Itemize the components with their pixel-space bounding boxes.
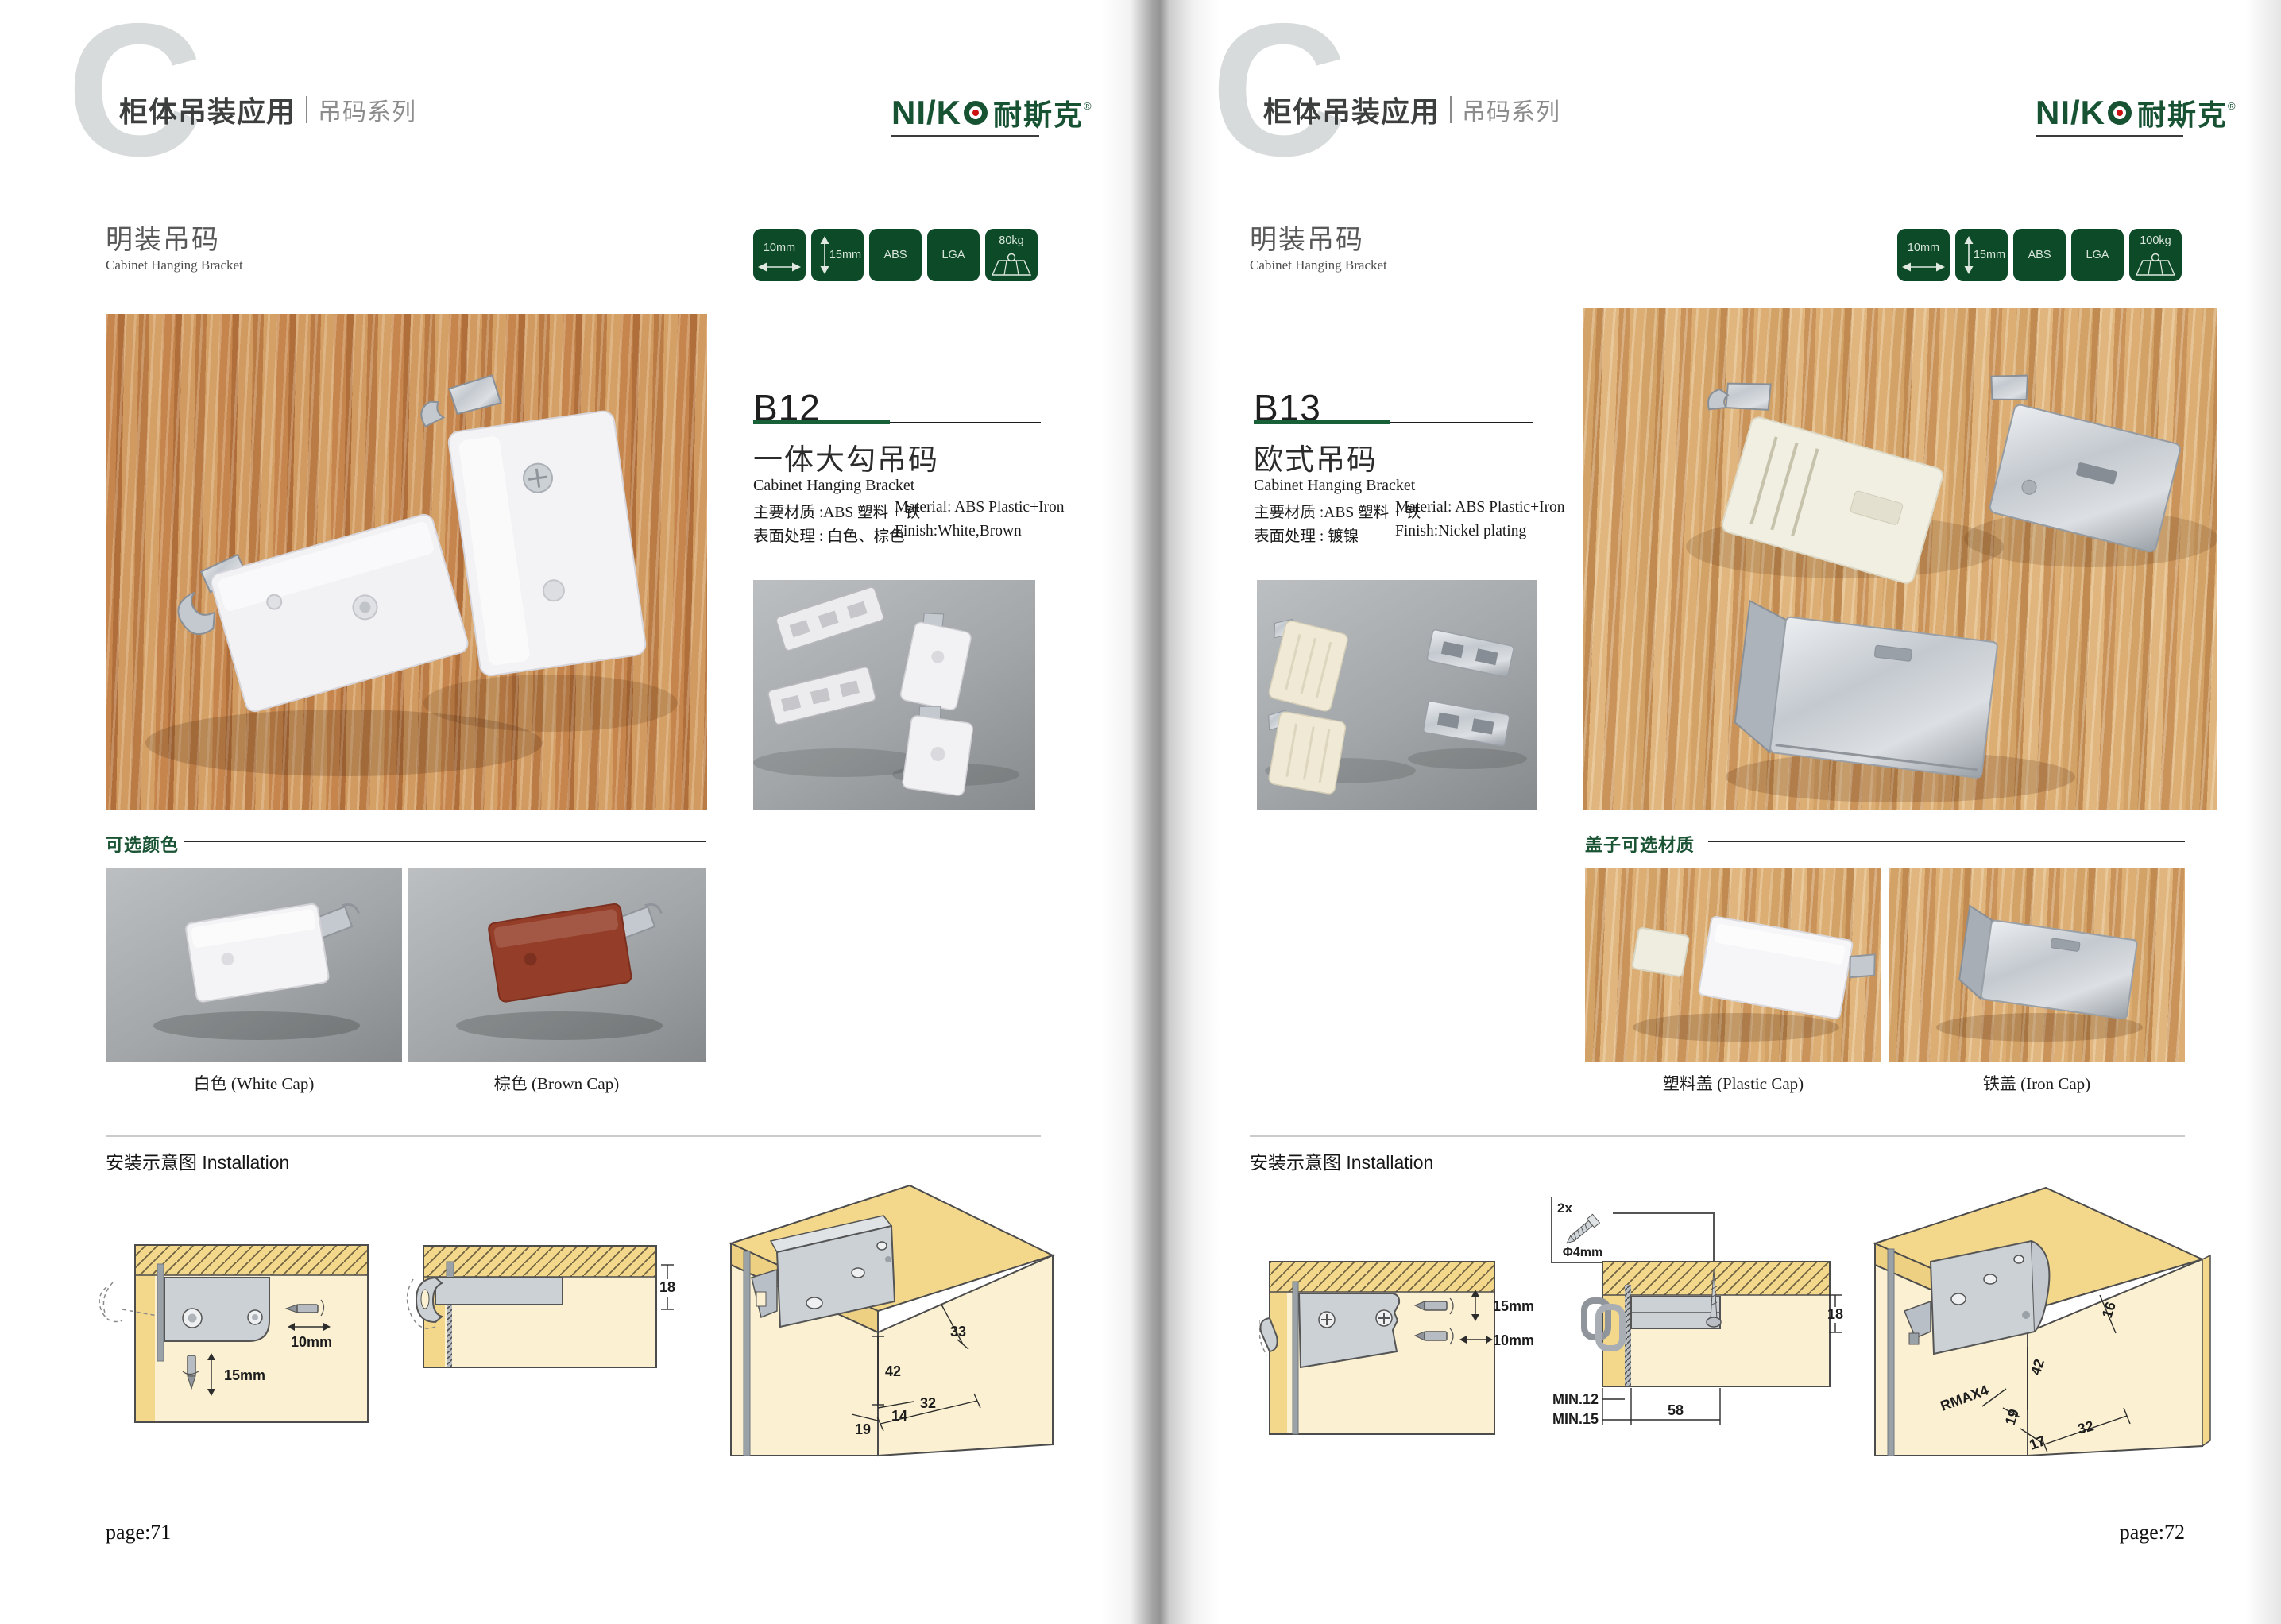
option-caption-plastic: 塑料盖 (Plastic Cap) [1585,1071,1881,1095]
dim-10mm: 10mm [291,1334,332,1350]
options-label: 可选颜色 [106,831,179,856]
product-name-zh: 一体大勾吊码 [753,435,939,478]
option-photo-iron [1889,868,2185,1062]
product-photo-inset [1257,580,1537,810]
width-arrow-icon [758,260,801,274]
logo-chinese-text: 耐斯克 [2137,92,2228,133]
option-photo-plastic [1585,868,1881,1062]
header-series: 吊码系列 [1462,92,1560,127]
iron-cap-illustration [1889,868,2185,1062]
installation-label: 安装示意图 Installation [1250,1147,1433,1174]
logo-latin-text: NI/K [891,94,961,132]
option-caption-brown: 棕色 (Brown Cap) [408,1071,705,1095]
product-photo-inset [753,580,1035,810]
page-header: 柜体吊装应用 吊码系列 [119,89,416,130]
section-title-zh: 明装吊码 [106,218,220,257]
badge-width: 10mm [1897,229,1950,281]
badge-load-label: 80kg [985,234,1038,247]
dim-15mm: 15mm [1493,1298,1534,1314]
logo-underline [2036,135,2183,137]
plastic-cap-illustration [1585,868,1881,1062]
options-rule [1708,841,2185,842]
dim-10mm: 10mm [1493,1332,1534,1348]
bracket-illustration [1583,308,2217,810]
dim-min15: MIN.15 [1552,1411,1599,1427]
header-title: 柜体吊装应用 [119,89,296,130]
book-gutter-shadow [1100,0,1220,1624]
page-number: page:72 [2066,1521,2185,1545]
header-separator [306,96,307,123]
spec-finish-en: Finish:White,Brown [895,523,1022,540]
diagram-panel-section: 18 [405,1239,679,1378]
product-photo-main [106,314,707,810]
logo-ring-icon [2108,101,2132,125]
installation-rule [106,1135,1041,1137]
load-capacity-icon [989,253,1034,276]
page-header: 柜体吊装应用 吊码系列 [1263,89,1560,130]
connector-line-h [1613,1212,1714,1214]
dim-33: 33 [950,1324,966,1340]
badge-material: ABS [2013,229,2066,281]
installation-label: 安装示意图 Installation [106,1147,289,1174]
brand-logo: NI/K 耐斯克 ® [2036,92,2236,133]
bracket-illustration [106,314,707,810]
badge-load-label: 100kg [2129,234,2182,247]
badge-cert: LGA [927,229,980,281]
dim-14: 14 [891,1408,907,1424]
logo-dot-icon [972,110,979,116]
badge-cert-label: LGA [2071,249,2124,261]
logo-chinese-text: 耐斯克 [993,92,1084,133]
nickel-cap [1732,601,1999,778]
installation-rule [1250,1135,2185,1137]
product-name-en: Cabinet Hanging Bracket [753,477,914,495]
option-caption-iron: 铁盖 (Iron Cap) [1889,1071,2185,1095]
badge-cert-label: LGA [927,249,980,261]
registered-mark: ® [1084,100,1092,112]
badge-height-label: 15mm [1963,249,2016,261]
option-photo-white [106,868,402,1062]
spec-material-en: Material: ABS Plastic+Iron [1395,499,1565,516]
page-edge-shadow [2245,0,2281,1624]
dim-42: 42 [885,1363,901,1379]
diagram-panel-section: MIN.12 MIN.15 58 18 [1549,1243,1855,1430]
brand-logo: NI/K 耐斯克 ® [891,92,1092,133]
inset-parts-illustration [753,580,1035,810]
spec-finish-zh: 表面处理 : 白色、棕色 [753,523,905,546]
registered-mark: ® [2228,100,2236,112]
logo-dot-icon [2117,110,2123,116]
dim-32: 32 [920,1395,936,1411]
inset-parts-illustration [1257,580,1537,810]
product-name-en: Cabinet Hanging Bracket [1254,477,1415,495]
options-label: 盖子可选材质 [1585,831,1695,856]
dim-15mm: 15mm [224,1367,265,1383]
badge-cert: LGA [2071,229,2124,281]
dim-58: 58 [1668,1402,1684,1418]
option-photo-brown [408,868,706,1062]
diagram-wall-section: 15mm 10mm [1259,1238,1541,1476]
bracket-lying [167,501,470,725]
option-caption-white: 白色 (White Cap) [106,1071,402,1095]
spec-finish-zh: 表面处理 : 镀镍 [1254,523,1359,546]
section-title-en: Cabinet Hanging Bracket [106,257,243,273]
product-photo-main [1583,308,2217,810]
badge-width-label: 10mm [753,242,806,254]
brown-cap-illustration [408,868,706,1062]
width-arrow-icon [1902,260,1945,274]
dim-min12: MIN.12 [1552,1391,1599,1407]
badge-material: ABS [869,229,922,281]
dim-18: 18 [659,1279,675,1295]
badge-width: 10mm [753,229,806,281]
header-separator [1450,96,1452,123]
header-title: 柜体吊装应用 [1263,89,1440,130]
badge-height-label: 15mm [819,249,872,261]
badge-width-label: 10mm [1897,242,1950,254]
badge-material-label: ABS [2013,249,2066,261]
white-cap-illustration [106,868,402,1062]
spec-finish-en: Finish:Nickel plating [1395,523,1526,540]
logo-ring-icon [964,101,988,125]
section-title-zh: 明装吊码 [1250,218,1364,257]
logo-latin-text: NI/K [2036,94,2105,132]
product-name-zh: 欧式吊码 [1254,435,1378,478]
badge-load: 80kg [985,229,1038,281]
product-divider-accent [753,420,890,424]
product-divider-accent [1254,420,1390,424]
options-rule [184,841,706,842]
badge-height: 15mm [811,229,864,281]
page-number: page:71 [106,1521,171,1545]
badge-material-label: ABS [869,249,922,261]
load-capacity-icon [2133,253,2178,276]
screw-icon [1561,1204,1609,1245]
header-series: 吊码系列 [318,92,416,127]
dim-18: 18 [1827,1306,1843,1322]
logo-underline [891,135,1039,137]
section-title-en: Cabinet Hanging Bracket [1250,257,1387,273]
dim-19: 19 [855,1421,871,1437]
diagram-isometric: 42 33 32 14 19 [715,1176,1057,1510]
catalog-spread: C 柜体吊装应用 吊码系列 NI/K 耐斯克 ® 明装吊码 Cabinet Ha… [0,0,2281,1624]
badge-height: 15mm [1955,229,2008,281]
diagram-wall-section: 10mm 15mm [94,1238,372,1429]
spec-material-en: Material: ABS Plastic+Iron [895,499,1065,516]
diagram-isometric: 42 16 RMAX4 19 17 32 [1863,1176,2213,1510]
badge-load: 100kg [2129,229,2182,281]
